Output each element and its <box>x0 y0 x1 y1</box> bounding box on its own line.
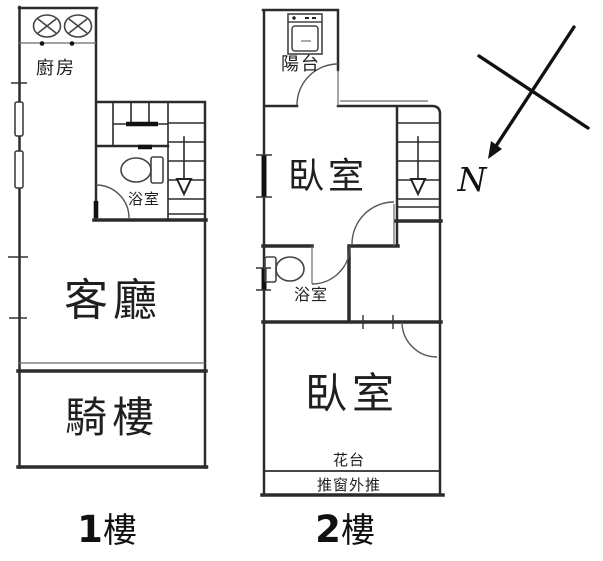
toilet-tank <box>151 157 163 183</box>
compass-arrowhead <box>488 141 502 159</box>
stair-down-arrow-icon <box>411 179 425 194</box>
room-label-bedroom-bottom: 臥室 <box>305 369 399 418</box>
washer-door <box>292 26 318 51</box>
window-icon <box>15 151 23 188</box>
room-label-arcade: 騎樓 <box>65 393 159 442</box>
room-label-bedroom-top: 臥室 <box>288 156 368 197</box>
room-label-living: 客廳 <box>64 275 162 326</box>
room-label-bathroom: 浴室 <box>128 190 160 208</box>
floor1-labels: 廚房 浴室 客廳 騎樓 <box>36 57 162 442</box>
floor1-caption-number: 1 <box>77 508 103 551</box>
floor1-caption: 1樓 <box>77 508 137 551</box>
floor2-labels: 陽台 臥室 浴室 臥室 花台 推窗外推 <box>281 54 399 494</box>
room-label-balcony: 陽台 <box>281 54 321 75</box>
door-swing-icon <box>402 322 437 357</box>
north-arrow-icon: N <box>457 27 588 199</box>
toilet-icon <box>121 158 151 182</box>
compass-line <box>479 56 588 128</box>
room-label-bathroom: 浴室 <box>294 285 328 304</box>
wall-segment <box>263 10 440 495</box>
stove-knob <box>70 41 75 46</box>
north-label: N <box>457 160 488 199</box>
floor2-walls <box>262 10 443 495</box>
washing-machine-icon <box>288 14 322 54</box>
floorplan-image: 廚房 浴室 客廳 騎樓 1樓 <box>0 0 603 561</box>
toilet-icon <box>276 257 304 281</box>
floor2-doors <box>297 64 437 357</box>
floor2-bathroom <box>265 257 304 282</box>
gas-stove-icon <box>34 15 92 46</box>
floor2-staircase <box>397 123 440 207</box>
floor2-caption: 2樓 <box>315 508 375 551</box>
floor2-caption-suffix: 樓 <box>341 511 375 551</box>
floor1-plan: 廚房 浴室 客廳 騎樓 1樓 <box>8 7 207 551</box>
floor1-windows <box>8 83 28 318</box>
floor2-plan: 陽台 臥室 浴室 臥室 花台 推窗外推 2樓 <box>256 10 443 551</box>
door-swing-icon <box>312 246 350 284</box>
stove-knob <box>40 41 45 46</box>
burner-blades <box>38 19 56 33</box>
floorplan-svg: 廚房 浴室 客廳 騎樓 1樓 <box>0 0 603 561</box>
room-label-kitchen: 廚房 <box>36 57 76 79</box>
door-swing-icon <box>352 202 394 244</box>
washer-body <box>288 14 322 54</box>
compass-arrow-line <box>496 27 574 146</box>
stair-dark-edge <box>126 124 158 147</box>
washer-knob <box>292 16 295 19</box>
floor1-caption-suffix: 樓 <box>103 511 137 551</box>
stair-down-arrow-icon <box>177 179 191 194</box>
window-icon <box>15 102 23 136</box>
label-window-note: 推窗外推 <box>317 476 381 494</box>
door-swing-icon <box>96 185 129 218</box>
toilet-tank <box>265 257 276 282</box>
label-flower-bed: 花台 <box>333 451 365 469</box>
burner-blades <box>69 19 87 33</box>
floor1-bathroom <box>96 157 163 218</box>
floor2-caption-number: 2 <box>315 508 341 551</box>
